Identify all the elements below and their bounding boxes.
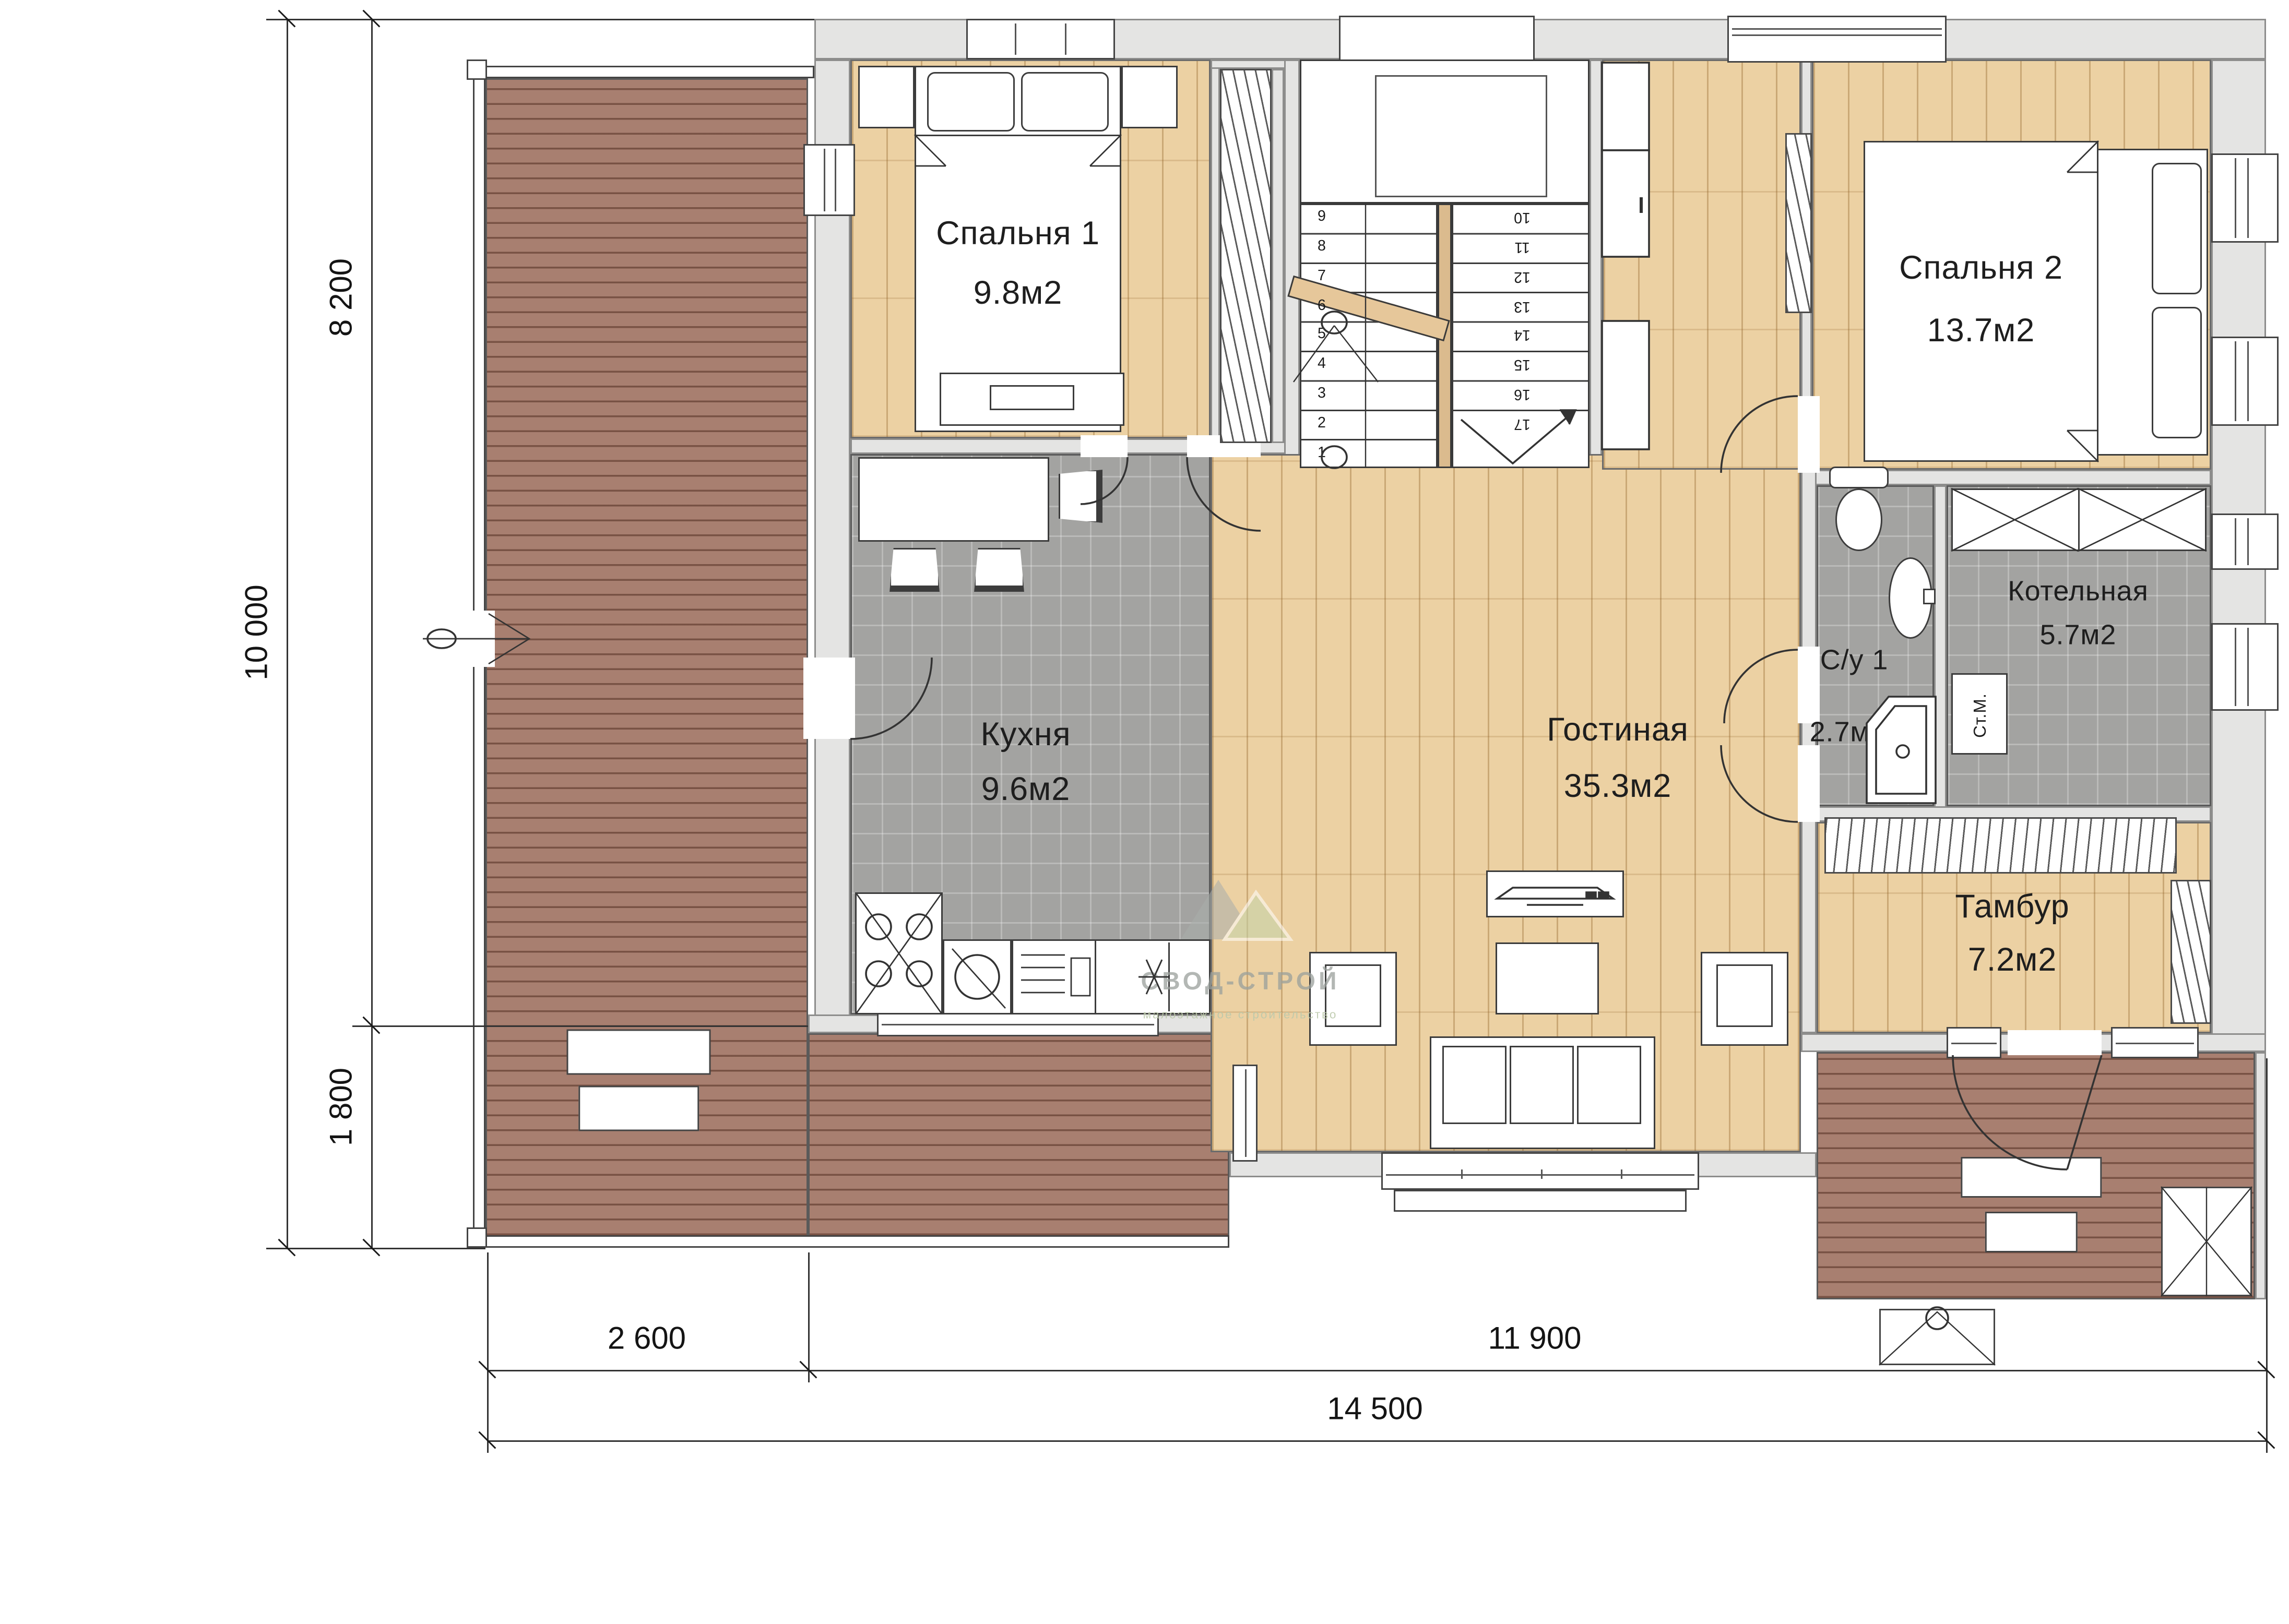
watermark-brand: СВОД-СТРОЙ (1141, 969, 1339, 997)
dim-line-left-inner (371, 19, 373, 1248)
bedroom1-west-window (803, 144, 855, 216)
floor-hall (1602, 59, 1801, 470)
label-tambour-name: Тамбур (1955, 889, 2069, 927)
dim-label-8200: 8 200 (325, 258, 361, 337)
bay-mullion (1461, 1169, 1463, 1179)
sink-unit (943, 939, 1012, 1014)
label-bedroom1-area: 9.8м2 (974, 276, 1062, 313)
stair-step-label: 8 (1306, 236, 1337, 257)
pillow (2152, 163, 2202, 294)
dim-line-bottom-inner (487, 1370, 2266, 1371)
label-bedroom2-name: Спальня 2 (1899, 250, 2063, 288)
chair (1059, 470, 1102, 523)
floor-plan-viewport: 9 8 7 6 5 4 3 2 1 10 11 12 13 14 15 16 1… (0, 0, 2289, 1624)
label-porch-area: 6.5м2 (1985, 1212, 2077, 1252)
label-porch-name: Крыльцо (1961, 1157, 2101, 1198)
label-boiler-area: 5.7м2 (2040, 619, 2117, 652)
window-glass (2235, 518, 2236, 565)
bed2-sheet (1864, 141, 2098, 462)
pillow (1021, 72, 1109, 132)
boiler-east-window-1 (2211, 514, 2279, 570)
boiler-east-window-2 (2211, 623, 2279, 711)
wall-porch-east (2255, 1052, 2266, 1299)
window-mullion (1065, 23, 1066, 55)
stair-step-label: 10 (1507, 207, 1538, 227)
window-glass (2247, 341, 2249, 421)
window-glass (824, 149, 825, 211)
dim-ext-x1447 (2266, 1058, 2268, 1453)
wall-stair-west (1284, 59, 1300, 470)
dim-line-bottom-outer (487, 1440, 2266, 1442)
terrace-post-sw (467, 1227, 487, 1248)
window-glass (2235, 158, 2236, 238)
label-bedroom1-name: Спальня 1 (936, 216, 1100, 254)
bedroom1-north-window (966, 19, 1115, 59)
label-boiler-name: Котельная (2008, 576, 2149, 608)
label-bedroom2-area: 13.7м2 (1927, 313, 2035, 351)
stair-step-label: 2 (1306, 413, 1337, 434)
stair-step-label: 6 (1306, 296, 1337, 316)
stair-step-label: 15 (1507, 354, 1538, 374)
watermark-tagline: малоэтажное строительство (1143, 1008, 1338, 1022)
door-gap-bedroom2 (1798, 396, 1820, 473)
dim-ext-top (266, 19, 814, 20)
washing-machine: Ст.М. (1951, 673, 2008, 755)
dim-line-left-outer (287, 19, 288, 1248)
window-glass (2235, 628, 2236, 706)
window-glass (2116, 1043, 2194, 1044)
washing-machine-label: Ст.М. (1972, 693, 1990, 738)
dim-ext-x516 (808, 1252, 810, 1382)
window-glass (882, 1024, 1154, 1025)
closet-bedroom1 (1220, 69, 1272, 443)
dim-ext-x311 (487, 1252, 489, 1453)
coffee-table (1496, 942, 1599, 1014)
porch-steps (2161, 1187, 2252, 1296)
dim-label-11900: 11 900 (1488, 1322, 1581, 1358)
entrance-step-marker (1879, 1309, 1995, 1365)
toilet-tank (1829, 467, 1889, 488)
stair-step-label: 9 (1306, 207, 1337, 227)
stair-step-label: 7 (1306, 266, 1337, 286)
dim-label-10000: 10 000 (241, 584, 277, 680)
stair-step-label: 12 (1507, 266, 1538, 286)
bay-glass-line (1386, 1174, 1694, 1176)
bay-glass-line2 (1732, 34, 1942, 36)
bay-mullion (1541, 1169, 1543, 1179)
sofa-cushion (1442, 1046, 1507, 1124)
chimney-shaft (1339, 16, 1535, 63)
label-kitchen-area: 9.6м2 (981, 772, 1070, 809)
label-tambour-area: 7.2м2 (1968, 942, 2057, 980)
bedroom2-east-window-2 (2211, 337, 2279, 426)
closet-bedroom2-shaft (1785, 133, 1812, 313)
wall-closet-right (1272, 69, 1284, 443)
stair-step-label: 4 (1306, 354, 1337, 374)
pillow (2152, 307, 2202, 438)
wall-bedroom1-east (1211, 59, 1220, 443)
sofa-cushion (1577, 1046, 1641, 1124)
dishwasher (1012, 939, 1096, 1014)
door-gap-kitchen (1081, 435, 1128, 457)
stair-step-label: 3 (1306, 384, 1337, 404)
dim-label-2600: 2 600 (608, 1322, 686, 1358)
kitchen-south-window (877, 1011, 1159, 1036)
stove (855, 892, 943, 1014)
stair-flight-right-base (1452, 438, 1590, 468)
tv-unit (1486, 870, 1624, 917)
stair-step-label: 13 (1507, 296, 1538, 316)
label-terrace-area: 31.5м2 (578, 1086, 699, 1131)
north-bay-window (1727, 16, 1947, 63)
nightstand-right (1121, 66, 1178, 128)
window-glass (2247, 158, 2249, 238)
basin-faucet (1923, 589, 1936, 604)
living-west-window (1232, 1065, 1258, 1162)
chair (974, 548, 1024, 592)
bedroom2-east-window-1 (2211, 153, 2279, 243)
floor-plan: 9 8 7 6 5 4 3 2 1 10 11 12 13 14 15 16 1… (0, 0, 2289, 1623)
window-glass (2247, 518, 2249, 565)
dim-ext-mid (352, 1025, 808, 1027)
tambour-window-left (1947, 1027, 2001, 1058)
dining-table (858, 457, 1049, 542)
terrace-post-nw (467, 59, 487, 80)
door-gap-tambour (1798, 745, 1820, 822)
sofa-cushion (1510, 1046, 1574, 1124)
label-kitchen-name: Кухня (980, 717, 1071, 755)
label-terrace-name: Терраса (567, 1030, 711, 1075)
window-glass (2235, 341, 2236, 421)
window-mullion (1015, 23, 1016, 55)
stair-opening-outline (1375, 75, 1547, 197)
door-gap-terrace (803, 658, 855, 739)
window-glass (835, 149, 836, 211)
bay-mullion (1621, 1169, 1622, 1179)
closet-tambour-east (2171, 880, 2211, 1024)
nightstand-left (858, 66, 915, 128)
stair-step-label: 17 (1507, 413, 1538, 434)
window-glass (1951, 1043, 1997, 1044)
stair-step-label: 1 (1306, 443, 1337, 463)
living-bay-sill (1394, 1190, 1687, 1212)
label-living-area: 35.3м2 (1564, 769, 1671, 806)
window-glass (2247, 628, 2249, 706)
stair-step-label: 11 (1507, 236, 1538, 257)
bay-glass-line (1732, 28, 1942, 30)
stair-step-label: 14 (1507, 324, 1538, 344)
terrace-west-opening (464, 611, 495, 667)
terrace-wall-north (473, 66, 814, 78)
dim-ext-bottom (266, 1248, 485, 1249)
dim-label-14500: 14 500 (1327, 1393, 1423, 1429)
window-glass (1245, 1069, 1247, 1157)
wall-stair-east (1590, 59, 1602, 470)
terrace-wall-south (473, 1235, 1229, 1248)
chair (889, 548, 940, 592)
door-gap-entrance (2008, 1030, 2102, 1055)
living-bay-window (1381, 1152, 1699, 1190)
label-bath-area: 2.7м2 (1810, 717, 1887, 749)
stair-step-label: 16 (1507, 384, 1538, 404)
label-living-name: Гостиная (1547, 712, 1689, 750)
desk-tray (990, 385, 1074, 410)
stair-step-label: 5 (1306, 324, 1337, 344)
floor-terrace-strip (808, 1033, 1229, 1237)
boiler-wardrobe-divider (2078, 490, 2080, 550)
pillow (927, 72, 1015, 132)
armchair-right-seat (1716, 964, 1773, 1027)
tambour-window-right (2111, 1027, 2199, 1058)
toilet-bowl (1835, 488, 1882, 551)
closet-coat-rack (1824, 817, 2177, 874)
dim-label-1800: 1 800 (325, 1068, 361, 1146)
label-bath-name: С/у 1 (1820, 644, 1889, 677)
wall-bath-east (1934, 485, 1947, 814)
terrace-entry-circle (428, 629, 456, 648)
door-gap-bathroom (1798, 647, 1820, 723)
